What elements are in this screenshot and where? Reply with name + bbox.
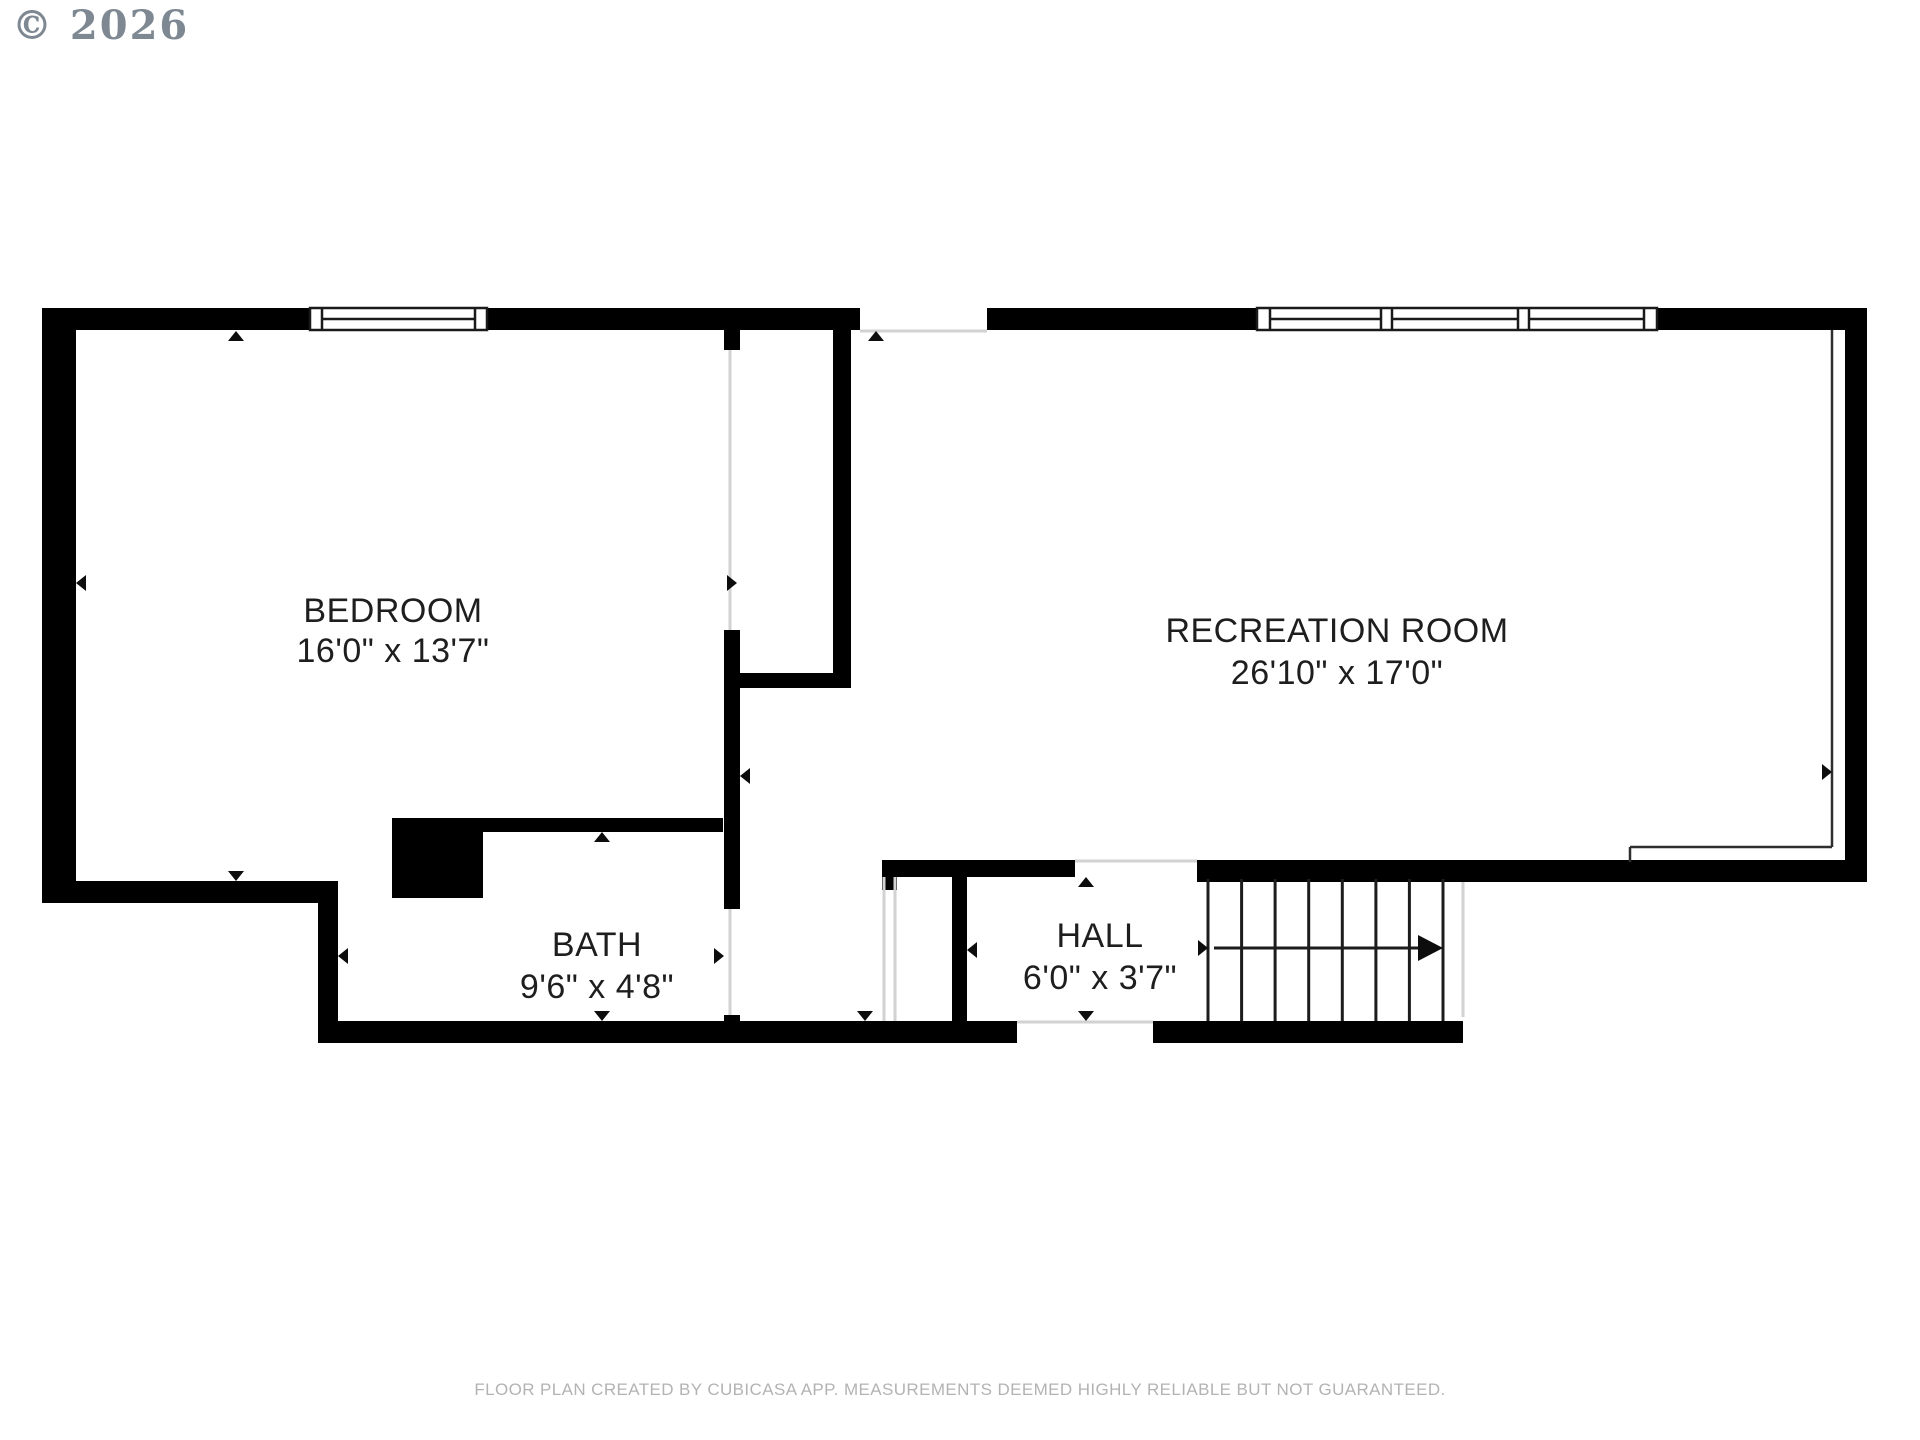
room-name: RECREATION ROOM: [1165, 612, 1508, 650]
wall: [724, 630, 740, 909]
wall: [318, 1021, 1017, 1043]
arrow-up-icon: [228, 331, 244, 341]
footer-disclaimer: FLOOR PLAN CREATED BY CUBICASA APP. MEAS…: [0, 1380, 1920, 1400]
wall: [487, 308, 860, 330]
walls: [42, 308, 1867, 1043]
arrow-right-icon: [1822, 764, 1832, 780]
arrow-up-icon: [594, 832, 610, 842]
wall: [882, 860, 1075, 877]
room-bath: BATH 9'6" x 4'8": [520, 926, 674, 1006]
wall: [724, 1015, 740, 1043]
window-icon: [310, 308, 487, 330]
room-name: BEDROOM: [303, 592, 482, 630]
arrow-down-icon: [1078, 1011, 1094, 1021]
room-dimensions: 26'10" x 17'0": [1231, 654, 1443, 692]
wall: [1153, 1021, 1463, 1043]
room-name: HALL: [1056, 917, 1143, 955]
arrow-down-icon: [857, 1011, 873, 1021]
room-dimensions: 6'0" x 3'7": [1023, 959, 1177, 997]
arrow-down-icon: [228, 871, 244, 881]
wall: [42, 881, 338, 903]
room-dimensions: 9'6" x 4'8": [520, 968, 674, 1006]
floor-plan-page: © 2026: [0, 0, 1920, 1440]
room-dimensions: 16'0" x 13'7": [297, 632, 490, 670]
wall: [724, 328, 740, 350]
arrow-left-icon: [338, 948, 348, 964]
wall: [42, 308, 310, 330]
window-icon: [1257, 308, 1657, 330]
arrow-right-icon: [714, 948, 724, 964]
wall: [987, 308, 1257, 330]
staircase: [1208, 879, 1443, 1021]
room-bedroom: BEDROOM 16'0" x 13'7": [297, 592, 490, 670]
wall: [42, 330, 76, 903]
wall: [1657, 308, 1867, 330]
wall: [740, 673, 851, 688]
ledge-lines: [1630, 330, 1832, 862]
arrow-left-icon: [76, 575, 86, 591]
wall: [318, 883, 338, 1043]
wall: [1197, 860, 1867, 882]
arrow-down-icon: [594, 1011, 610, 1021]
arrow-left-icon: [967, 942, 977, 958]
room-name: BATH: [552, 926, 642, 964]
arrow-up-icon: [1078, 877, 1094, 887]
arrow-right-icon: [727, 575, 737, 591]
room-labels: BEDROOM 16'0" x 13'7" RECREATION ROOM 26…: [297, 592, 1509, 1006]
room-recreation: RECREATION ROOM 26'10" x 17'0": [1165, 612, 1508, 692]
wall: [392, 818, 723, 832]
wall: [833, 328, 851, 688]
wall: [952, 877, 967, 1021]
floor-plan: BEDROOM 16'0" x 13'7" RECREATION ROOM 26…: [0, 0, 1920, 1440]
arrow-left-icon: [740, 768, 750, 784]
wall: [1845, 308, 1867, 863]
room-hall: HALL 6'0" x 3'7": [1023, 917, 1177, 997]
